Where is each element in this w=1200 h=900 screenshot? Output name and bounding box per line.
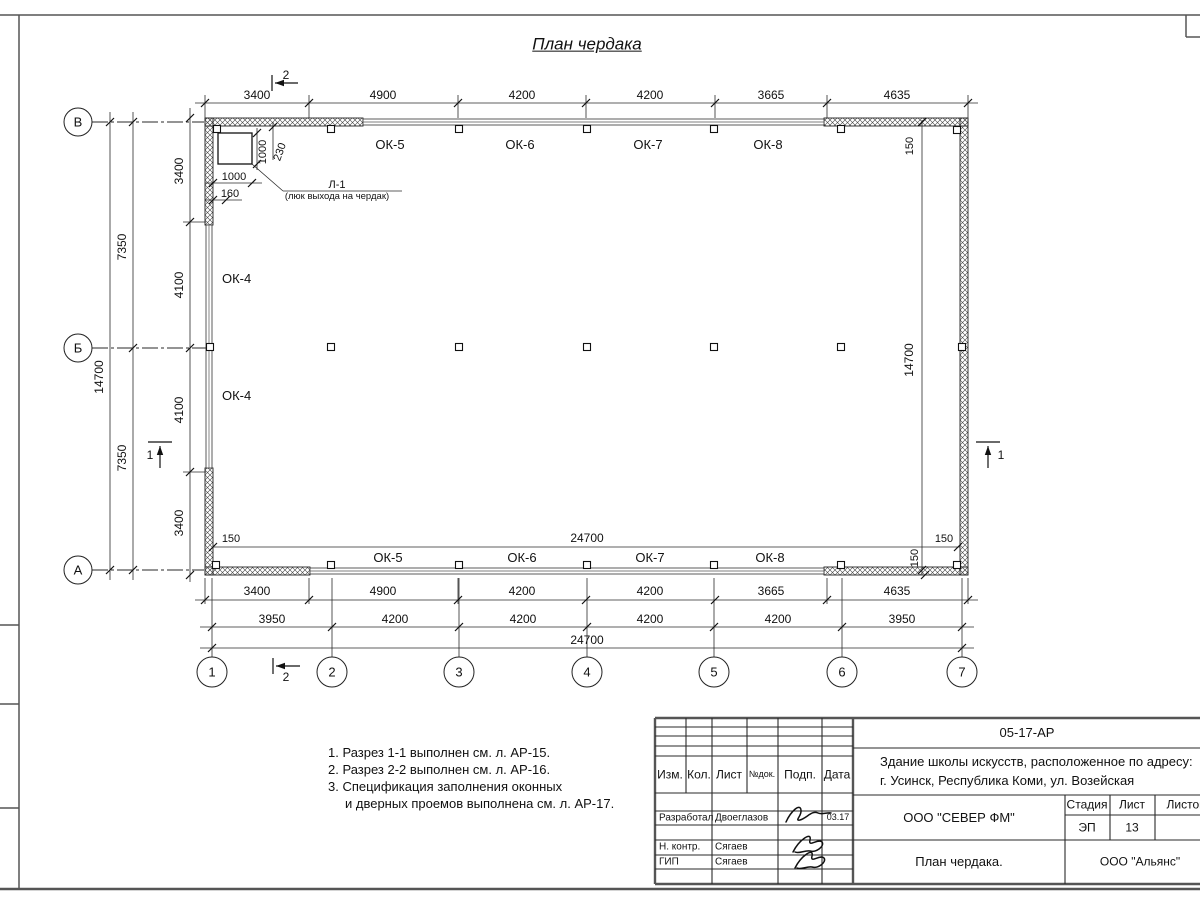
note-line-2: 2. Разрез 2-2 выполнен см. л. АР-16.	[328, 763, 550, 777]
section-arrow-head	[276, 663, 285, 669]
dim-label: 3400	[172, 157, 186, 184]
dim-label: ОК-7	[635, 550, 664, 565]
column-marker	[328, 126, 335, 133]
dim-label: 4635	[884, 88, 911, 102]
dim-label: 3665	[758, 584, 785, 598]
wall-hatch	[824, 567, 968, 575]
wall-hatch	[824, 118, 968, 126]
column-marker	[584, 344, 591, 351]
dim-label: 4635	[884, 584, 911, 598]
dim-label: 2	[283, 670, 290, 684]
grid-axis-col-label: 5	[710, 665, 717, 680]
dim-label: 3400	[172, 509, 186, 536]
section-arrow-head	[157, 446, 163, 455]
dim-label: 150	[904, 137, 916, 155]
dim-label: Л-1	[329, 179, 346, 191]
drawing-line	[252, 164, 283, 191]
dim-label: 4200	[510, 612, 537, 626]
signature	[793, 836, 823, 852]
dim-label: 7350	[115, 233, 129, 260]
column-marker	[213, 562, 220, 569]
grid-axis-col-label: 4	[583, 665, 590, 680]
column-marker	[207, 344, 214, 351]
titleblock-header-ndok: №док.	[749, 770, 775, 780]
titleblock-name-developer: Двоеглазов	[715, 813, 768, 824]
titleblock-header-kol: Кол.	[687, 768, 711, 781]
dim-label: ОК-6	[505, 137, 534, 152]
dim-label: ОК-8	[753, 137, 782, 152]
column-marker	[328, 344, 335, 351]
titleblock-object-line2: г. Усинск, Республика Коми, ул. Возейска…	[880, 774, 1134, 788]
dim-label: 160	[221, 188, 239, 200]
grid-axis-row-label: В	[74, 115, 83, 130]
dim-label: ОК-4	[222, 271, 251, 286]
column-marker	[456, 126, 463, 133]
dim-label: 1000	[222, 171, 246, 183]
dim-label: ОК-8	[755, 550, 784, 565]
dim-label: ОК-7	[633, 137, 662, 152]
wall-hatch	[205, 567, 310, 575]
dim-label: 4100	[172, 396, 186, 423]
wall-hatch	[205, 468, 213, 575]
dim-label: 24700	[570, 531, 604, 545]
dim-label: 3950	[259, 612, 286, 626]
titleblock-company: ООО "СЕВЕР ФМ"	[903, 811, 1015, 825]
titleblock-drawing-title: План чердака.	[915, 855, 1003, 869]
dim-label: 2	[283, 68, 290, 82]
dim-label: 4200	[637, 584, 664, 598]
titleblock-stage-label: Стадия	[1067, 798, 1108, 811]
dim-label: ОК-6	[507, 550, 536, 565]
column-marker	[328, 562, 335, 569]
drawing-sheet: 3400490042004200366546353400490042004200…	[0, 0, 1200, 900]
titleblock-role-ncontrol: Н. контр.	[659, 842, 700, 853]
column-marker	[838, 126, 845, 133]
column-marker	[456, 344, 463, 351]
grid-axis-col-label: 2	[328, 665, 335, 680]
column-marker	[456, 562, 463, 569]
dim-label: 24700	[570, 633, 604, 647]
dim-label: 4100	[172, 271, 186, 298]
column-marker	[711, 344, 718, 351]
titleblock-document-code: 05-17-АР	[1000, 726, 1055, 740]
dim-label: (люк выхода на чердак)	[285, 191, 389, 202]
column-marker	[214, 126, 221, 133]
wall-hatch	[205, 118, 363, 126]
grid-axis-col-label: 7	[958, 665, 965, 680]
titleblock-header-data: Дата	[824, 768, 851, 781]
column-marker	[584, 126, 591, 133]
dim-label: 4900	[370, 584, 397, 598]
dim-label: 4200	[637, 612, 664, 626]
dim-label: 14700	[902, 343, 916, 377]
dim-label: 4200	[765, 612, 792, 626]
column-marker	[584, 562, 591, 569]
column-marker	[959, 344, 966, 351]
column-marker	[711, 126, 718, 133]
column-marker	[954, 562, 961, 569]
dim-label: 3400	[244, 584, 271, 598]
attic-hatch-opening	[218, 133, 252, 164]
dim-label: 150	[909, 549, 921, 567]
column-marker	[954, 127, 961, 134]
column-marker	[711, 562, 718, 569]
titleblock-header-izm: Изм.	[657, 768, 683, 781]
titleblock-role-developer: Разработал	[659, 813, 713, 824]
titleblock-firm: ООО "Альянс"	[1100, 855, 1180, 868]
grid-axis-row-label: А	[74, 563, 83, 578]
grid-axis-col-label: 6	[838, 665, 845, 680]
titleblock-header-podp: Подп.	[784, 768, 816, 781]
dim-label: 1000	[257, 140, 269, 164]
titleblock-name-ncontrol: Сягаев	[715, 842, 748, 853]
dim-label: 230	[271, 141, 289, 162]
dim-label: 3665	[758, 88, 785, 102]
note-line-3: 3. Спецификация заполнения оконных	[328, 780, 562, 794]
signature	[786, 807, 831, 822]
titleblock-header-list: Лист	[716, 768, 742, 781]
dim-label: 150	[935, 533, 953, 545]
titleblock-sheets-label: Листов	[1167, 798, 1200, 811]
dim-label: 4200	[637, 88, 664, 102]
section-arrow-head	[275, 80, 284, 86]
titleblock-date-developer: 03.17	[827, 813, 850, 823]
column-marker	[838, 344, 845, 351]
dim-label: 4200	[382, 612, 409, 626]
dim-label: 4900	[370, 88, 397, 102]
wall-hatch	[205, 118, 213, 225]
note-line-4: и дверных проемов выполнена см. л. АР-17…	[345, 797, 614, 811]
titleblock-stage-value: ЭП	[1078, 821, 1095, 834]
dim-label: 4200	[509, 584, 536, 598]
dim-label: ОК-5	[373, 550, 402, 565]
dim-label: 7350	[115, 444, 129, 471]
titleblock-object-line1: Здание школы искусств, расположенное по …	[880, 755, 1193, 769]
dim-label: ОК-5	[375, 137, 404, 152]
dim-label: 1	[998, 448, 1005, 462]
dim-label: 3400	[244, 88, 271, 102]
titleblock-sheet-label: Лист	[1119, 798, 1145, 811]
titleblock-role-gip: ГИП	[659, 857, 679, 868]
grid-axis-col-label: 3	[455, 665, 462, 680]
grid-axis-row-label: Б	[74, 341, 83, 356]
column-marker	[838, 562, 845, 569]
dim-label: 1	[147, 448, 154, 462]
section-arrow-head	[985, 446, 991, 455]
dim-label: ОК-4	[222, 388, 251, 403]
dim-label: 4200	[509, 88, 536, 102]
dim-label: 14700	[92, 360, 106, 394]
grid-axis-col-label: 1	[208, 665, 215, 680]
sheet-title: План чердака	[532, 36, 641, 55]
titleblock-name-gip: Сягаев	[715, 857, 748, 868]
titleblock-sheet-number: 13	[1125, 821, 1138, 834]
dim-label: 3950	[889, 612, 916, 626]
dim-label: 150	[222, 533, 240, 545]
note-line-1: 1. Разрез 1-1 выполнен см. л. АР-15.	[328, 746, 550, 760]
